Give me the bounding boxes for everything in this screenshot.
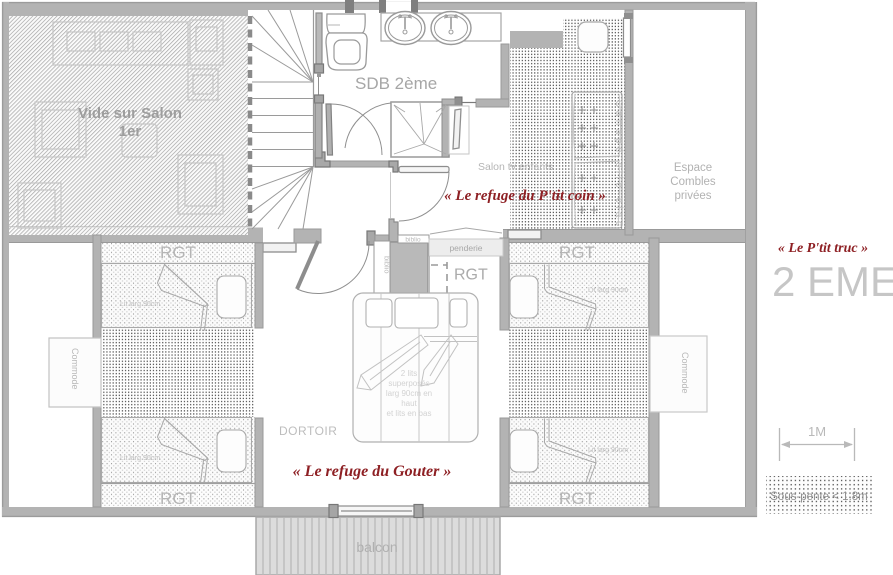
svg-text:SDB 2ème: SDB 2ème [355, 74, 437, 93]
svg-text:Combles: Combles [670, 176, 716, 188]
svg-text:biblio: biblio [405, 237, 421, 244]
svg-text:RGT: RGT [559, 243, 595, 262]
svg-text:Commode: Commode [680, 352, 690, 394]
svg-text:Lit larg 90cm: Lit larg 90cm [120, 301, 160, 308]
svg-text:biblio: biblio [383, 256, 392, 274]
svg-text:RGT: RGT [559, 489, 595, 508]
svg-text:1M: 1M [808, 424, 826, 439]
svg-text:RGT: RGT [160, 489, 196, 508]
svg-text:Vide sur Salon: Vide sur Salon [78, 105, 182, 122]
svg-text:2 EME: 2 EME [772, 258, 893, 305]
svg-text:RGT: RGT [454, 267, 488, 284]
svg-text:2 lits: 2 lits [401, 369, 417, 378]
svg-text:Canapé clic-clac: Canapé clic-clac [613, 100, 624, 226]
svg-text:« Le refuge du Gouter »: « Le refuge du Gouter » [293, 463, 452, 480]
svg-text:DORTOIR: DORTOIR [279, 424, 337, 438]
svg-text:larg 90cm en: larg 90cm en [386, 389, 432, 398]
svg-text:superposés: superposés [388, 379, 429, 388]
svg-text:Sous-pente < 1.8m: Sous-pente < 1.8m [770, 491, 868, 503]
svg-text:RGT: RGT [160, 243, 196, 262]
svg-text:Lit larg 90cm: Lit larg 90cm [588, 447, 628, 454]
svg-text:« Le refuge du P'tit coin »: « Le refuge du P'tit coin » [444, 188, 606, 204]
svg-text:privées: privées [674, 190, 711, 202]
svg-text:Lit larg 90cm: Lit larg 90cm [588, 287, 628, 294]
svg-text:Commode: Commode [70, 348, 80, 390]
svg-text:Salon tv enfants: Salon tv enfants [478, 161, 553, 173]
svg-text:et lits en bas: et lits en bas [387, 409, 432, 418]
svg-text:penderie: penderie [449, 243, 482, 253]
svg-text:Espace: Espace [674, 162, 712, 174]
svg-text:1er: 1er [119, 123, 142, 140]
svg-text:« Le P'tit truc »: « Le P'tit truc » [778, 241, 868, 256]
svg-text:Lit larg 90cm: Lit larg 90cm [120, 455, 160, 462]
svg-text:balcon: balcon [356, 539, 397, 555]
svg-text:haut: haut [401, 399, 417, 408]
